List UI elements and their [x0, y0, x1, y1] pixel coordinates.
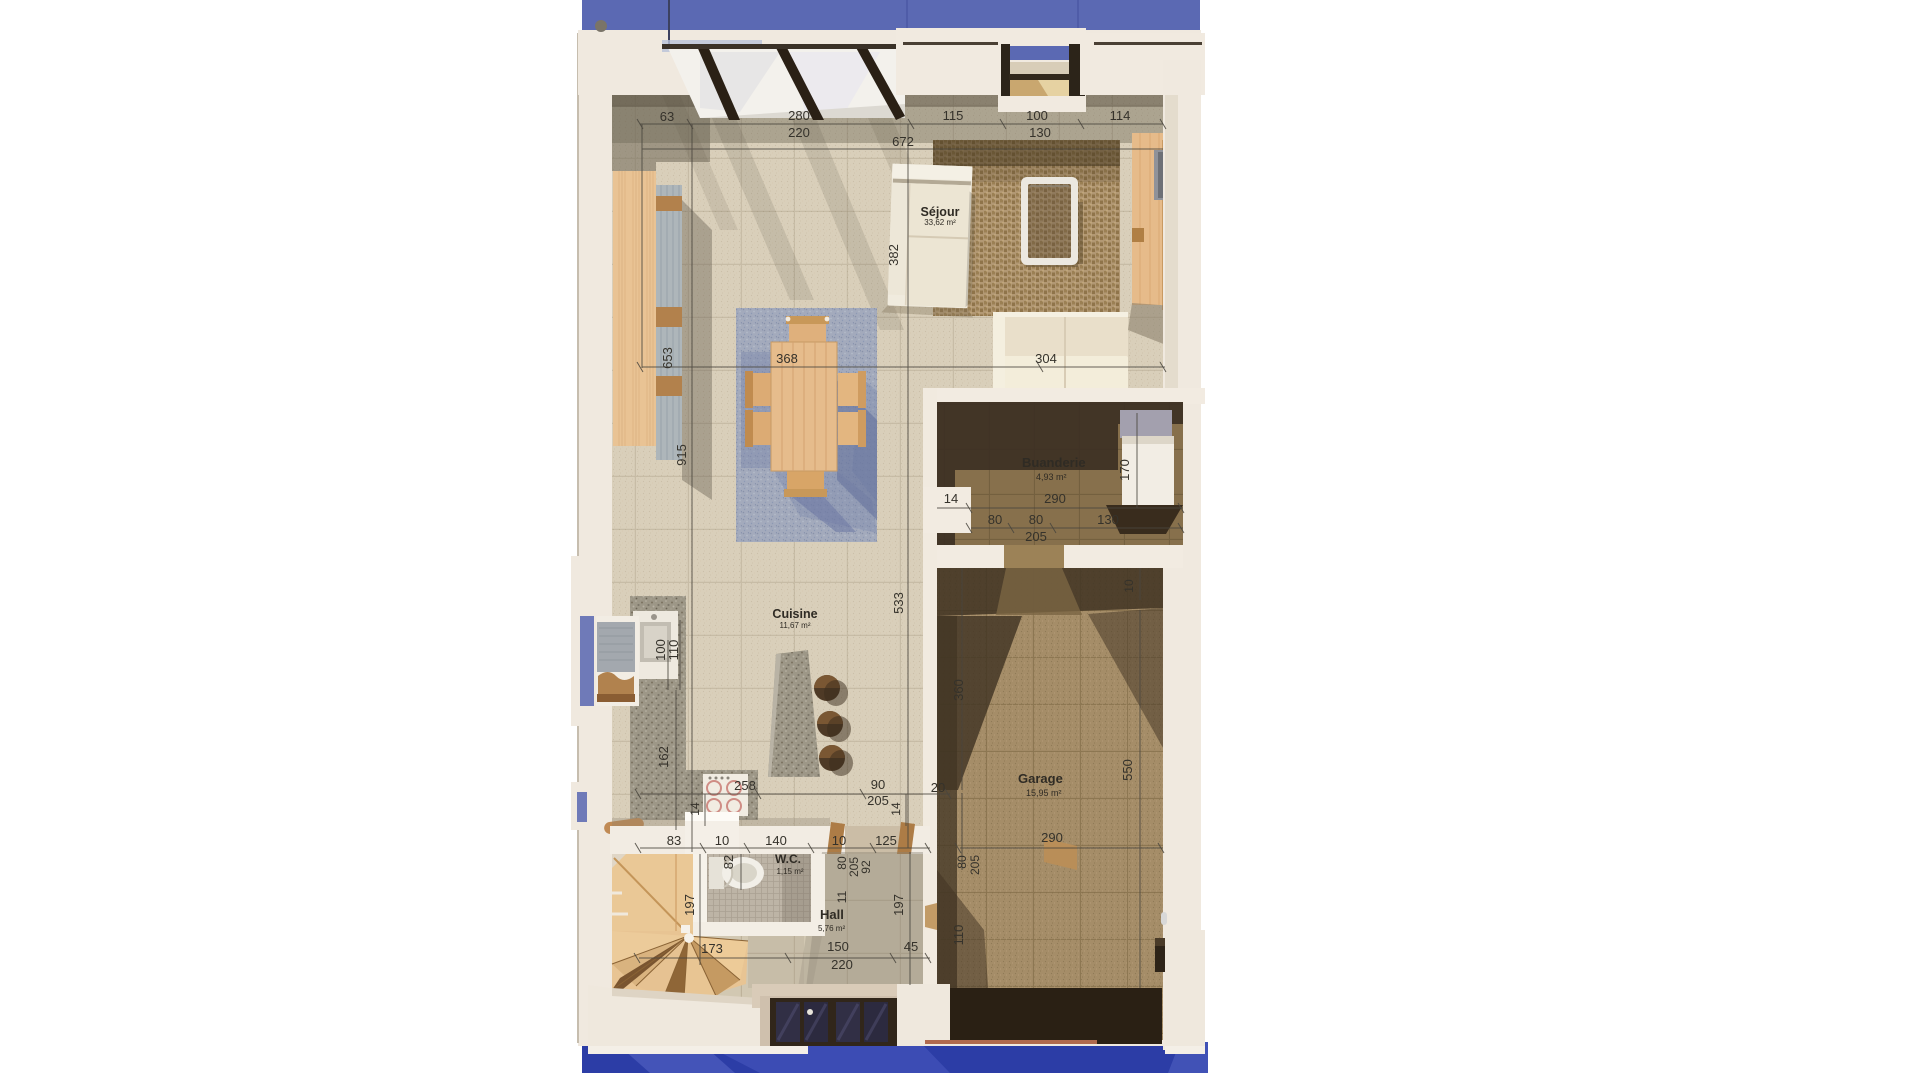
svg-text:110: 110 — [951, 925, 966, 946]
svg-text:Garage: Garage — [1018, 771, 1063, 786]
svg-text:14: 14 — [889, 802, 903, 816]
svg-text:4,93 m²: 4,93 m² — [1036, 472, 1067, 482]
svg-text:Hall: Hall — [820, 907, 844, 922]
svg-text:14: 14 — [944, 491, 958, 506]
svg-text:550: 550 — [1120, 759, 1135, 781]
svg-text:290: 290 — [1041, 830, 1063, 845]
svg-text:173: 173 — [701, 941, 723, 956]
svg-text:220: 220 — [831, 957, 853, 972]
svg-text:672: 672 — [892, 134, 914, 149]
svg-text:360: 360 — [951, 679, 966, 701]
svg-text:Cuisine: Cuisine — [772, 607, 817, 621]
svg-text:533: 533 — [891, 592, 906, 614]
svg-text:110: 110 — [666, 640, 681, 661]
svg-text:382: 382 — [886, 244, 901, 266]
svg-text:205: 205 — [867, 793, 889, 808]
svg-text:205: 205 — [1025, 529, 1047, 544]
svg-text:130: 130 — [1097, 512, 1119, 527]
svg-text:63: 63 — [660, 109, 674, 124]
svg-text:258: 258 — [734, 778, 756, 793]
svg-text:125: 125 — [875, 833, 897, 848]
svg-text:1,15 m²: 1,15 m² — [776, 867, 803, 876]
svg-text:653: 653 — [660, 347, 675, 369]
svg-text:92: 92 — [859, 860, 873, 874]
svg-text:82: 82 — [721, 855, 736, 869]
svg-text:304: 304 — [1035, 351, 1057, 366]
svg-text:10: 10 — [715, 833, 729, 848]
svg-text:368: 368 — [776, 351, 798, 366]
svg-text:45: 45 — [904, 939, 918, 954]
svg-text:100: 100 — [1026, 108, 1048, 123]
svg-text:80: 80 — [1029, 512, 1043, 527]
svg-text:220: 220 — [788, 125, 810, 140]
svg-text:33,62 m²: 33,62 m² — [924, 218, 956, 227]
svg-text:80: 80 — [988, 512, 1002, 527]
svg-text:150: 150 — [827, 939, 849, 954]
svg-text:80: 80 — [955, 855, 969, 869]
svg-text:115: 115 — [943, 108, 964, 123]
svg-text:15,95 m²: 15,95 m² — [1026, 788, 1062, 798]
svg-text:280: 280 — [788, 108, 810, 123]
svg-text:W.C.: W.C. — [775, 852, 801, 866]
svg-text:11: 11 — [835, 890, 849, 903]
svg-text:130: 130 — [1029, 125, 1051, 140]
svg-text:20: 20 — [931, 780, 945, 795]
svg-text:14: 14 — [688, 802, 702, 816]
svg-text:170: 170 — [1117, 459, 1132, 481]
svg-text:Buanderie: Buanderie — [1022, 455, 1086, 470]
svg-text:205: 205 — [968, 855, 982, 875]
svg-text:10: 10 — [1122, 579, 1136, 593]
svg-text:140: 140 — [765, 833, 787, 848]
svg-text:83: 83 — [667, 833, 681, 848]
svg-text:11,67 m²: 11,67 m² — [780, 621, 811, 630]
svg-text:162: 162 — [656, 746, 671, 768]
svg-text:90: 90 — [871, 777, 885, 792]
svg-text:114: 114 — [1110, 108, 1131, 123]
svg-text:197: 197 — [682, 894, 697, 916]
svg-text:290: 290 — [1044, 491, 1066, 506]
svg-text:10: 10 — [832, 833, 846, 848]
svg-text:915: 915 — [674, 444, 689, 466]
svg-text:Séjour: Séjour — [921, 205, 960, 219]
svg-text:197: 197 — [891, 894, 906, 916]
svg-text:5,76 m²: 5,76 m² — [818, 924, 845, 933]
